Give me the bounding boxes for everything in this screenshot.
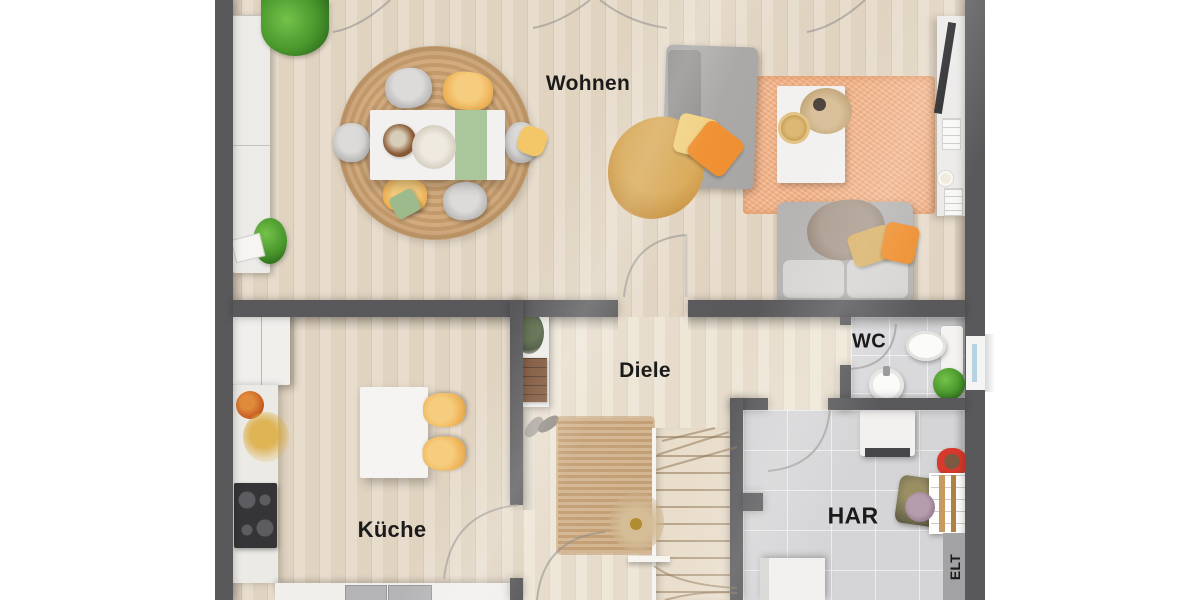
har-door-arc bbox=[768, 409, 830, 471]
window-sill-outside bbox=[985, 334, 995, 392]
entrance-door-arc bbox=[537, 532, 605, 600]
window-swing-arc bbox=[600, 0, 667, 28]
room-label-wc: WC bbox=[852, 331, 886, 354]
living-door-arc bbox=[624, 235, 686, 297]
window-swing-arc bbox=[807, 0, 865, 32]
window-swing-arc bbox=[533, 0, 590, 28]
room-label-kueche: Küche bbox=[358, 517, 427, 543]
floor-plan-image: Wohnen Küche Diele WC HAR ELT bbox=[0, 0, 1200, 600]
room-label-har: HAR bbox=[828, 503, 879, 530]
room-label-diele: Diele bbox=[619, 359, 671, 383]
stair-curve-tread bbox=[665, 592, 737, 600]
window-swing-arc bbox=[333, 0, 390, 32]
room-label-wohnen: Wohnen bbox=[546, 72, 630, 96]
room-label-elt: ELT bbox=[947, 554, 963, 580]
kitchen-door-arc bbox=[444, 505, 518, 579]
floor-plan: Wohnen Küche Diele WC HAR ELT bbox=[215, 0, 985, 600]
stair-curve-tread bbox=[654, 566, 737, 588]
